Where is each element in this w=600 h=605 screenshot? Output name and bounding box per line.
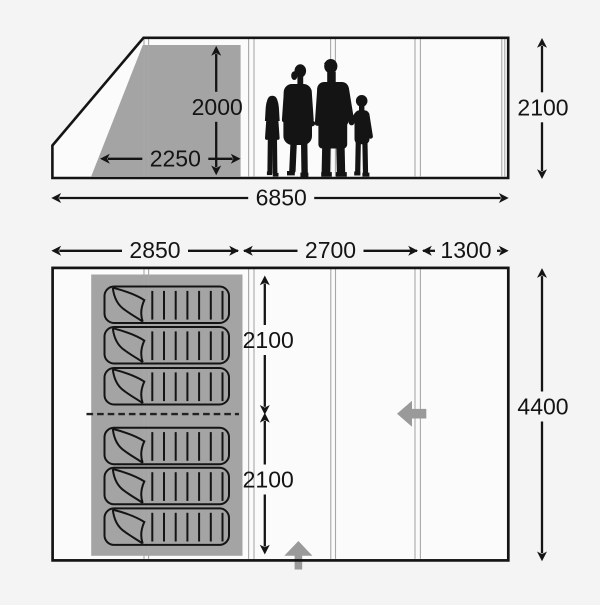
svg-text:6850: 6850 [256, 185, 307, 211]
svg-text:2700: 2700 [305, 237, 356, 263]
svg-text:2000: 2000 [192, 94, 243, 120]
svg-text:2100: 2100 [243, 467, 294, 493]
svg-text:2100: 2100 [243, 327, 294, 353]
svg-text:2850: 2850 [129, 237, 180, 263]
svg-text:1300: 1300 [440, 237, 491, 263]
svg-text:2100: 2100 [517, 95, 568, 121]
svg-text:2250: 2250 [150, 145, 201, 171]
svg-text:4400: 4400 [517, 394, 568, 420]
